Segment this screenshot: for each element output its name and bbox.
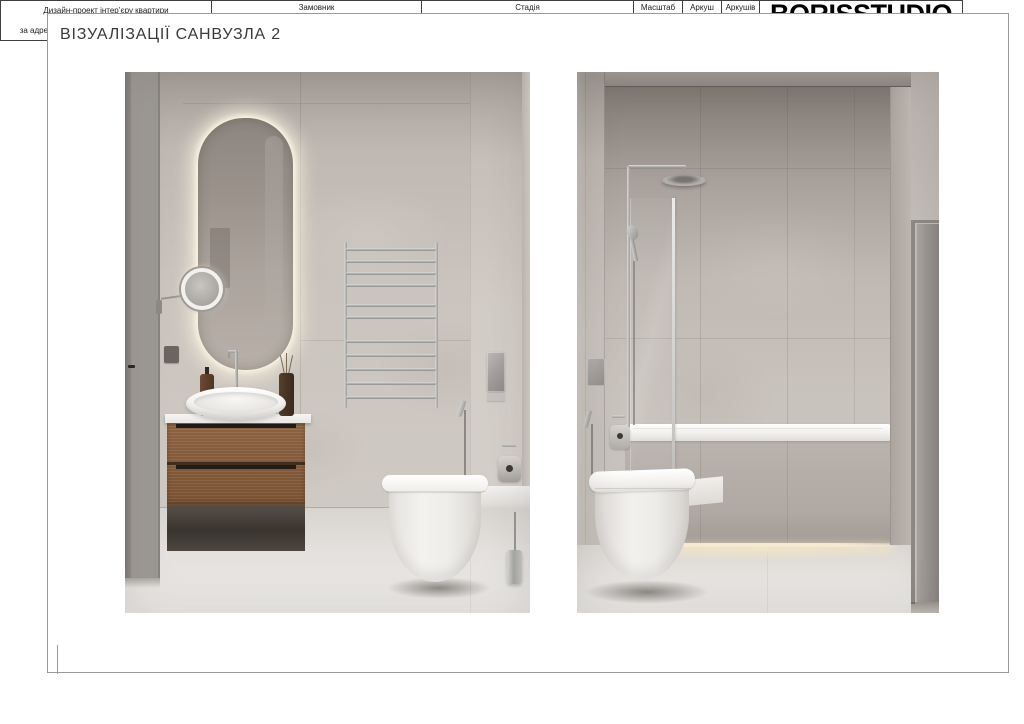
mirror-reflection-highlight [265,136,283,341]
frame-tick [57,645,58,674]
toilet-brush-rod [514,512,516,552]
tile-seam [605,168,890,169]
towel-rail-bar [346,272,436,275]
flush-plate [587,358,605,386]
towel-rail-bar [346,316,436,319]
vessel-sink [186,387,286,420]
towel-rail-bar [346,368,436,371]
rain-shower-head [662,175,706,186]
towel-rail-bar [346,284,436,287]
render-bathroom-bathtub-view [577,72,939,613]
towel-rail-bar [346,260,436,263]
towel-rail-bar [346,304,436,307]
flush-plate [487,352,505,392]
toilet-paper-core [617,433,623,439]
shower-rail [627,166,630,428]
drawer-handle [176,424,296,428]
magnifier-wall-mount [156,300,162,314]
diffuser-stick [286,353,287,374]
towel-rail-bar [346,396,436,399]
toilet-shadow [585,580,709,604]
page-title: ВІЗУАЛІЗАЦІЇ САНВУЗЛА 2 [60,26,281,44]
light-switch [164,346,179,363]
toilet-seat [382,475,488,492]
door-panel [916,224,939,602]
side-wall [470,72,530,508]
tile-seam [787,87,788,427]
under-vanity-shadow [167,505,305,551]
faucet-tip [228,353,230,358]
toilet-seat-line [387,491,485,492]
apron-seam [787,441,788,544]
backlit-mirror [196,116,295,372]
toilet-paper-bracket [502,444,516,447]
toilet-paper-core [506,465,513,472]
door-frame [911,220,915,604]
hand-shower-hose [633,261,635,425]
toilet-seat-line [595,488,691,489]
heated-towel-rail [344,242,438,408]
hygienic-shower-hose [464,410,466,482]
ceiling [577,72,939,86]
towel-rail-bar [346,382,436,385]
floor-seam [767,552,768,613]
vanity-drawers [167,423,305,505]
door-frame-top [911,220,939,223]
towel-rail-bar [346,340,436,343]
wall-pilaster [890,87,911,545]
render-bathroom-vanity-view [125,72,530,613]
magnifying-mirror [181,268,223,310]
door [125,72,160,578]
faucet-riser [235,350,238,390]
drawer-handle [176,465,296,469]
diffuser-stick [288,355,293,375]
toilet-brush-cup [507,550,522,584]
ceiling-line [577,86,939,87]
tile-seam [854,87,855,427]
towel-rail-bar [346,248,436,251]
towel-rail-bar [346,354,436,357]
diffuser-stick [280,355,285,375]
door-floor-shadow [911,602,939,613]
door-handle [128,365,135,368]
rain-shower-arm [628,165,686,168]
toilet-seat [589,468,696,493]
toilet-paper-bracket [612,415,625,418]
tile-seam [183,103,470,104]
sink-basin [194,392,278,412]
flush-plate-shelf [487,394,505,401]
tile-seam [700,87,701,427]
door-floor-shadow [125,578,160,588]
side-wall-seam [585,72,586,548]
